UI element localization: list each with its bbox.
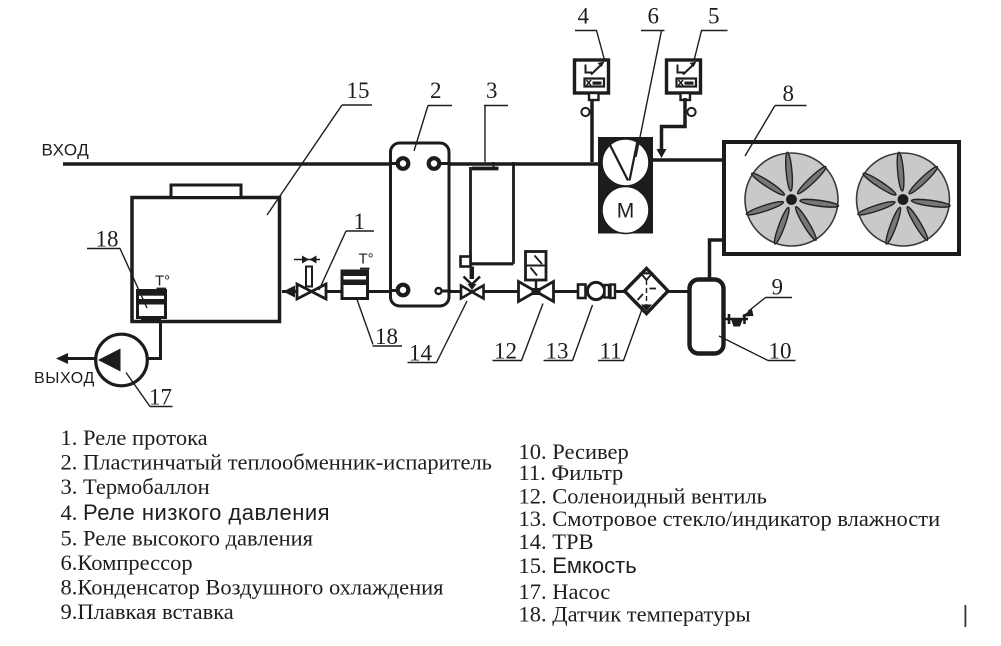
svg-text:3: 3 [486, 78, 498, 103]
svg-text:6.Компрессор: 6.Компрессор [61, 550, 193, 575]
svg-text:13. Смотровое стекло/индикатор: 13. Смотровое стекло/индикатор влажности [519, 506, 941, 531]
svg-text:T°: T° [155, 273, 170, 290]
svg-text:8: 8 [783, 81, 795, 106]
svg-text:15: 15 [347, 78, 370, 103]
svg-text:5. Реле высокого давления: 5. Реле высокого давления [61, 526, 314, 551]
svg-text:17. Насос: 17. Насос [519, 579, 611, 604]
svg-text:4. Реле низкого давления: 4. Реле низкого давления [61, 500, 331, 525]
svg-text:11. Фильтр: 11. Фильтр [519, 460, 624, 485]
svg-text:12. Соленоидный вентиль: 12. Соленоидный вентиль [519, 484, 767, 509]
svg-text:ВЫХОД: ВЫХОД [34, 370, 95, 387]
svg-text:T°: T° [359, 251, 374, 268]
svg-text:M: M [617, 200, 635, 223]
svg-text:9: 9 [772, 275, 784, 300]
svg-text:18. Датчик температуры: 18. Датчик температуры [519, 602, 751, 627]
svg-text:5: 5 [708, 4, 720, 29]
svg-text:4: 4 [578, 4, 590, 29]
svg-text:6: 6 [648, 4, 660, 29]
svg-text:8.Конденсатор Воздушного охлаж: 8.Конденсатор Воздушного охлаждения [61, 575, 444, 600]
svg-text:1. Реле протока: 1. Реле протока [61, 425, 208, 450]
svg-text:3. Термобаллон: 3. Термобаллон [61, 474, 210, 499]
svg-text:9.Плавкая вставка: 9.Плавкая вставка [61, 599, 234, 624]
svg-text:2: 2 [430, 78, 442, 103]
svg-text:ВХОД: ВХОД [42, 141, 90, 160]
svg-text:15. Емкость: 15. Емкость [519, 553, 637, 578]
svg-text:14. ТРВ: 14. ТРВ [519, 529, 594, 554]
svg-text:2. Пластинчатый теплообменник-: 2. Пластинчатый теплообменник-испаритель [61, 450, 492, 475]
